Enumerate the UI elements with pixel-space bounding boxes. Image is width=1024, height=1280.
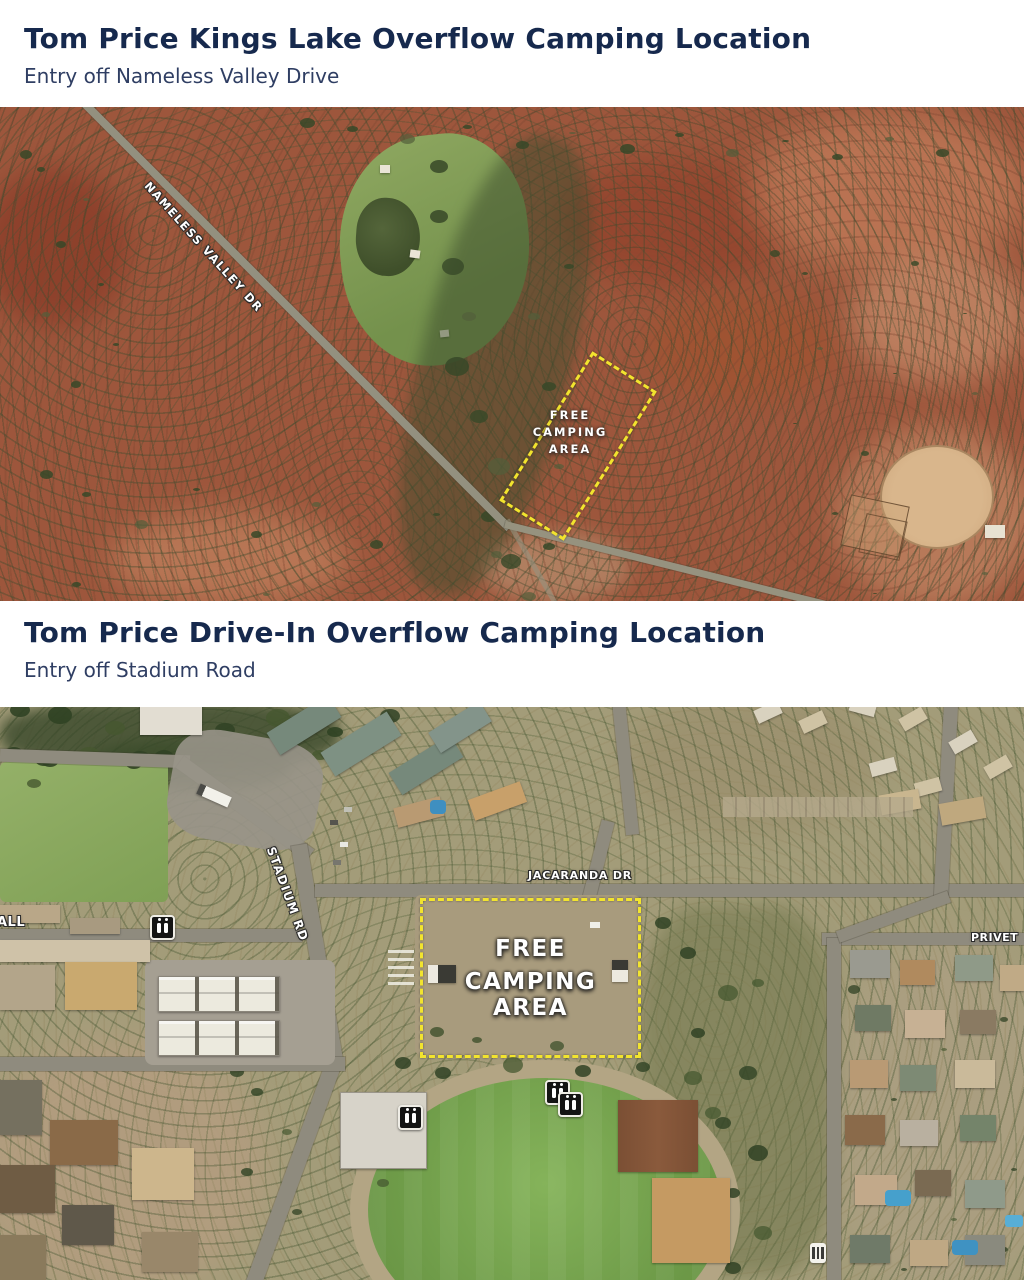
shrub-cluster <box>395 1057 411 1069</box>
shelter-hut <box>409 249 420 258</box>
flyer-page: Tom Price Kings Lake Overflow Camping Lo… <box>0 0 1024 1280</box>
house <box>955 955 993 981</box>
kings-lake-aerial-map: FREE CAMPING AREA NAMELESS VALLEY DR <box>0 107 1024 601</box>
partial-road-label <box>810 1243 826 1263</box>
shrub-cluster <box>848 985 860 994</box>
building <box>62 1205 114 1245</box>
section1-title: Tom Price Kings Lake Overflow Camping Lo… <box>24 22 811 55</box>
toilets-icon <box>558 1092 583 1117</box>
house <box>855 1005 891 1031</box>
section2-header: Tom Price Drive-In Overflow Camping Loca… <box>24 616 765 682</box>
tan-building <box>65 962 137 1010</box>
shrub-cluster <box>655 917 671 929</box>
parking-strip <box>723 797 913 817</box>
arena-building <box>985 525 1005 538</box>
house <box>965 1180 1005 1208</box>
building <box>0 1080 42 1135</box>
section2-subtitle: Entry off Stadium Road <box>24 658 765 682</box>
swimming-pool <box>885 1190 911 1206</box>
building <box>50 1120 118 1165</box>
house <box>960 1115 996 1141</box>
free-camping-area-outline: FREE CAMPING AREA <box>420 898 641 1058</box>
shrub-cluster <box>430 160 448 173</box>
shrub-cluster <box>300 118 315 128</box>
shrub-cluster <box>20 150 32 159</box>
parked-car <box>330 820 338 825</box>
shelter-hut <box>380 165 390 173</box>
toilets-icon <box>398 1105 423 1130</box>
grass-field <box>0 762 168 902</box>
shed-row <box>70 918 120 934</box>
toilets-icon <box>150 915 175 940</box>
gray-building <box>0 965 55 1010</box>
house <box>850 950 890 978</box>
building <box>142 1232 198 1272</box>
section2-title: Tom Price Drive-In Overflow Camping Loca… <box>24 616 765 649</box>
unit-block-row <box>158 976 280 1012</box>
house <box>905 1010 945 1038</box>
house <box>900 1065 936 1091</box>
parked-car <box>333 860 341 865</box>
building <box>140 707 202 735</box>
building <box>132 1148 194 1200</box>
house <box>1000 965 1024 991</box>
brown-building <box>618 1100 698 1172</box>
house <box>900 960 935 985</box>
house <box>845 1115 885 1145</box>
swimming-pool <box>952 1240 978 1255</box>
tan-building <box>652 1178 730 1263</box>
shrub-cluster <box>770 250 780 257</box>
house <box>900 1120 938 1146</box>
house <box>915 1170 951 1196</box>
house <box>960 1010 996 1034</box>
section1-header: Tom Price Kings Lake Overflow Camping Lo… <box>24 22 811 88</box>
shrub-cluster <box>40 470 53 479</box>
road-label-all-partial: ALL <box>0 915 25 930</box>
east-street <box>827 938 841 1280</box>
trailer-row <box>388 950 414 990</box>
road-label-jacaranda-dr: JACARANDA DR <box>528 869 632 882</box>
house <box>910 1240 948 1266</box>
arena-yards <box>858 513 907 561</box>
house <box>850 1235 890 1263</box>
house <box>850 1060 888 1088</box>
swimming-pool <box>430 800 446 814</box>
long-roof-building <box>0 940 150 962</box>
free-camping-area-label: FREE CAMPING AREA <box>505 407 635 458</box>
building <box>0 1235 46 1280</box>
clubhouse-building <box>340 1092 427 1169</box>
house <box>955 1060 995 1088</box>
parked-car <box>344 807 352 812</box>
section1-subtitle: Entry off Nameless Valley Drive <box>24 64 811 88</box>
swimming-pool <box>1005 1215 1023 1227</box>
building <box>0 1165 55 1213</box>
unit-block-row <box>158 1020 280 1056</box>
parked-car <box>340 842 348 847</box>
road-label-privet: PRIVET <box>971 931 1018 944</box>
drive-in-aerial-map: FREE CAMPING AREA <box>0 707 1024 1280</box>
